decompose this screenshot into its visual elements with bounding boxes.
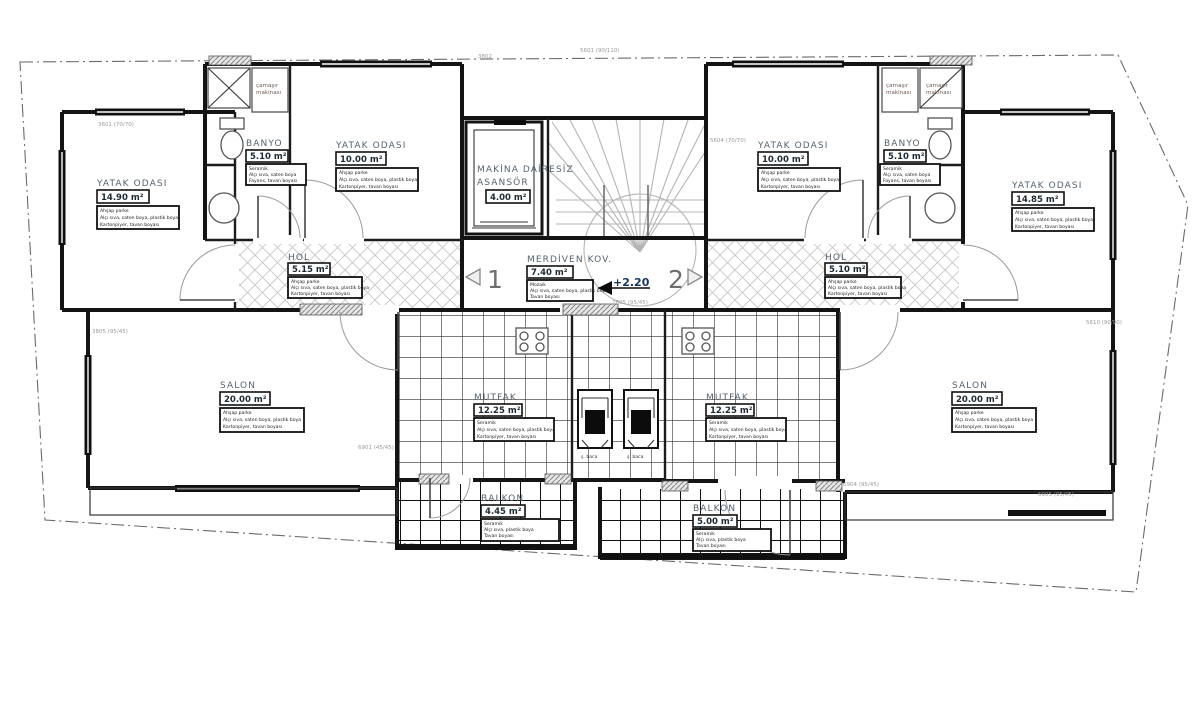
dim-label: 2805 (95/45)	[612, 300, 648, 306]
room-name: SALON	[220, 381, 256, 391]
finish-note: Alçı sıva, saten boya, plastik boya	[223, 417, 301, 423]
room-name: YATAK ODASI	[1011, 181, 1082, 191]
finish-note: Kartonpiyer, tavan boyası	[828, 291, 887, 297]
unit-1-number: 1	[487, 265, 503, 294]
finish-note: Seramik	[883, 166, 902, 172]
room-name: YATAK ODASI	[96, 179, 167, 189]
finish-note: Ahşap parke	[291, 279, 320, 285]
finish-note: Ahşap parke	[339, 170, 368, 176]
chimney-label: ş. baca	[627, 454, 644, 460]
finish-note: Alçı sıva, saten boya	[883, 172, 930, 178]
room-label-asansor: MAKİNA DAİRESİZ ASANSÖR 4.00 m²	[477, 164, 574, 203]
finish-note: Ahşap parke	[955, 410, 984, 416]
toilet-tank	[220, 118, 244, 129]
area-value: 12.25 m²	[710, 406, 753, 416]
area-value: 14.90 m²	[101, 193, 144, 203]
finish-note: Fayans, tavan boyası	[249, 178, 297, 184]
elevator	[466, 116, 542, 234]
finish-note: Seramik	[477, 420, 496, 426]
finish-note: Kartonpiyer, tavan boyası	[339, 184, 398, 190]
finish-note: Alçı sıva, saten boya, plastik boya	[100, 215, 178, 221]
room-name: MERDİVEN KOV.	[527, 254, 612, 265]
finish-note: Seramik	[709, 420, 728, 426]
area-value: 10.00 m²	[762, 155, 805, 165]
finish-note: Alçı sıva, saten boya, plastik boya	[761, 177, 839, 183]
dim-label: 6904 (95/45)	[843, 482, 879, 488]
finish-note: Seramik	[249, 166, 268, 172]
washer-label: makinası	[886, 90, 912, 96]
level-value: +2.20	[613, 276, 650, 289]
finish-note: Alçı sıva, saten boya, plastik boya	[530, 288, 608, 294]
dim-label: 5601 (90/110)	[580, 48, 619, 54]
finish-note: Kartonpiyer, tavan boyası	[1015, 224, 1074, 230]
room-name: MAKİNA DAİRESİZ	[477, 164, 574, 175]
room-label-salon-right: SALON 20.00 m² Ahşap parke Alçı sıva, sa…	[952, 381, 1036, 432]
area-value: 5.15 m²	[292, 265, 329, 275]
room-name: BANYO	[246, 139, 283, 149]
washer-label: çamaşır	[886, 83, 909, 89]
room-label-merdiven: MERDİVEN KOV. 7.40 m² Mozaik Alçı sıva, …	[527, 254, 612, 301]
balcony-railing	[395, 544, 577, 550]
finish-note: Kartonpiyer, tavan boyası	[291, 291, 350, 297]
finish-note: Alçı sıva, plastik boya	[484, 527, 534, 533]
room-name: BALKON	[693, 504, 736, 514]
railing	[1008, 510, 1106, 516]
finish-note: Kartonpiyer, tavan boyası	[709, 434, 768, 440]
room-name: HOL	[288, 253, 310, 263]
finish-note: Tavan boyası	[695, 543, 726, 549]
floor-plan-page: ş. baca ş. baca YATAK ODASI 14.90 m² Ahş…	[0, 0, 1200, 702]
finish-note: Alçı sıva, saten boya, plastik boya	[291, 285, 369, 291]
finish-note: Tavan boyası	[483, 533, 514, 539]
balcony-railing	[598, 553, 847, 559]
toilet-icon	[221, 131, 243, 159]
area-value: 12.25 m²	[478, 406, 521, 416]
finish-note: Seramik	[484, 521, 503, 527]
finish-note: Ahşap parke	[1015, 210, 1044, 216]
room-label-yatak-right-inner: YATAK ODASI 10.00 m² Ahşap parke Alçı sı…	[757, 141, 840, 191]
room-label-salon-left: SALON 20.00 m² Ahşap parke Alçı sıva, sa…	[220, 381, 304, 432]
room-label-yatak-right-outer: YATAK ODASI 14.85 m² Ahşap parke Alçı sı…	[1011, 181, 1094, 231]
dim-label: 3802	[478, 54, 492, 60]
kitchen-tile-floor	[399, 312, 837, 479]
area-value: 4.45 m²	[485, 507, 522, 517]
finish-note: Alçı sıva, saten boya, plastik boya	[339, 177, 417, 183]
room-name: BALKON	[481, 494, 524, 504]
area-value: 5.10 m²	[250, 152, 287, 162]
dim-label: 3805 (95/45)	[92, 329, 128, 335]
area-value: 10.00 m²	[340, 155, 383, 165]
room-name: HOL	[825, 253, 847, 263]
area-value: 5.10 m²	[888, 152, 925, 162]
washer-label: çamaşır	[256, 83, 279, 89]
finish-note: Ahşap parke	[100, 208, 129, 214]
room-label-yatak-left-outer: YATAK ODASI 14.90 m² Ahşap parke Alçı sı…	[96, 179, 179, 229]
sink-icon	[209, 193, 239, 223]
bathroom-fixtures	[209, 118, 955, 223]
unit-2-number: 2	[668, 265, 684, 294]
room-name: BANYO	[884, 139, 921, 149]
sink-icon	[925, 193, 955, 223]
finish-note: Ahşap parke	[223, 410, 252, 416]
finish-note: Alçı sıva, plastik boya	[696, 537, 746, 543]
toilet-icon	[929, 131, 951, 159]
finish-note: Kartonpiyer, tavan boyası	[477, 434, 536, 440]
area-value: 20.00 m²	[224, 395, 267, 405]
finish-note: Kartonpiyer, tavan boyası	[761, 184, 820, 190]
finish-note: Seramik	[696, 531, 715, 537]
dim-label: 6901 (45/45)	[358, 445, 394, 451]
finish-note: Kartonpiyer, tavan boyası	[100, 222, 159, 228]
area-value: 4.00 m²	[490, 193, 527, 203]
washer-label: makinası	[926, 90, 952, 96]
finish-note: Alçı sıva, saten boya, plastik boya	[709, 427, 787, 433]
area-value: 7.40 m²	[531, 268, 568, 278]
dim-label: 6905 (95/45)	[1038, 492, 1074, 498]
unit-1-arrow-icon	[466, 269, 480, 285]
unit-2-arrow-icon	[688, 269, 702, 285]
area-value: 20.00 m²	[956, 395, 999, 405]
finish-note: Alçı sıva, saten boya, plastik boya	[828, 285, 906, 291]
shafts	[208, 68, 962, 112]
dim-label: 5604 (70/70)	[710, 138, 746, 144]
room-name: MUTFAK	[474, 393, 517, 403]
finish-note: Mozaik	[530, 282, 546, 288]
finish-note: Ahşap parke	[761, 170, 790, 176]
room-name: ASANSÖR	[477, 177, 529, 188]
room-name: YATAK ODASI	[757, 141, 828, 151]
dim-label: 3601 (70/70)	[98, 122, 134, 128]
area-value: 5.00 m²	[697, 517, 734, 527]
area-value: 14.85 m²	[1016, 195, 1059, 205]
chimney-label: ş. baca	[581, 454, 598, 460]
finish-note: Tavan boyası	[529, 294, 560, 300]
finish-note: Fayans, tavan boyası	[883, 178, 931, 184]
finish-note: Ahşap parke	[828, 279, 857, 285]
room-name: MUTFAK	[706, 393, 749, 403]
room-label-yatak-left-inner: YATAK ODASI 10.00 m² Ahşap parke Alçı sı…	[335, 141, 418, 191]
washer-labels: çamaşır makinası çamaşır makinası çamaşı…	[256, 83, 952, 96]
finish-note: Alçı sıva, saten boya	[249, 172, 296, 178]
room-name: YATAK ODASI	[335, 141, 406, 151]
finish-note: Alçı sıva, saten boya, plastik boya	[1015, 217, 1093, 223]
area-value: 5.10 m²	[829, 265, 866, 275]
toilet-tank	[928, 118, 952, 129]
room-label-banyo-left: BANYO 5.10 m² Seramik Alçı sıva, saten b…	[246, 139, 306, 185]
finish-note: Kartonpiyer, tavan boyası	[955, 424, 1014, 430]
floor-plan-canvas: ş. baca ş. baca YATAK ODASI 14.90 m² Ahş…	[0, 0, 1200, 702]
room-name: SALON	[952, 381, 988, 391]
finish-note: Kartonpiyer, tavan boyası	[223, 424, 282, 430]
washer-label: çamaşır	[926, 83, 949, 89]
washer-label: makinası	[256, 90, 282, 96]
dim-label: 5610 (90/90)	[1086, 320, 1122, 326]
finish-note: Alçı sıva, saten boya, plastik boya	[477, 427, 555, 433]
finish-note: Alçı sıva, saten boya, plastik boya	[955, 417, 1033, 423]
